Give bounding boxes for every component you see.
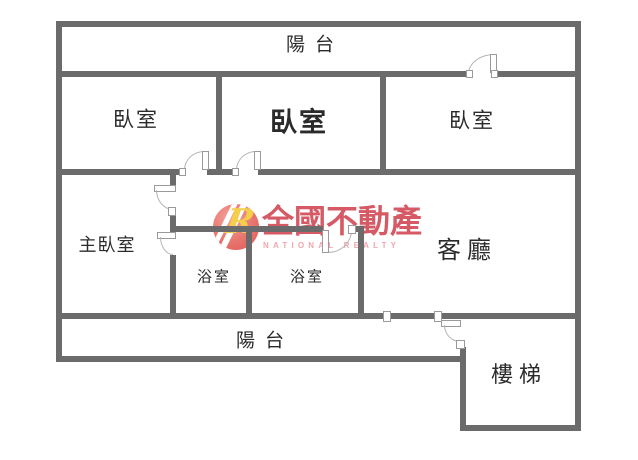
door-arc — [160, 237, 173, 255]
room-label-bedroom-middle: 臥室 — [270, 110, 328, 137]
wall-main-bottom — [56, 313, 383, 319]
wall-balcony-top — [56, 71, 469, 77]
room-label-master-bedroom: 主臥室 — [79, 236, 136, 254]
wall-balcony-top — [497, 71, 581, 77]
room-label-balcony-top: 陽台 — [286, 36, 344, 55]
door-jamb — [179, 168, 186, 176]
floor-plan: R 全國不動產 NATIONAL REALTY — [0, 0, 638, 460]
room-label-bedroom-right: 臥室 — [449, 111, 495, 132]
door-leaf — [202, 151, 209, 170]
room-label-stairs: 樓梯 — [491, 364, 547, 386]
wall-outer-right — [575, 21, 581, 431]
wall-main-bottom — [391, 313, 435, 319]
door-leaf — [254, 151, 261, 170]
door-jamb — [383, 311, 391, 322]
wall-balcony-bottom — [56, 356, 466, 362]
wall-master-right — [170, 255, 176, 313]
wall-outer-top — [56, 21, 581, 27]
door-jamb — [168, 207, 176, 216]
room-label-bedroom-left: 臥室 — [113, 110, 159, 131]
door-arc — [184, 151, 204, 170]
wall-stairs-left — [460, 347, 466, 431]
wall-bedroom-divider-right — [380, 77, 386, 169]
room-label-balcony-bottom: 陽台 — [236, 332, 294, 351]
door-leaf — [322, 230, 329, 253]
door-jamb — [348, 225, 356, 234]
wall-main-bottom — [442, 313, 581, 319]
wall-bedroom-divider-left — [216, 77, 222, 169]
plan-layer: 陽台 臥室 臥室 臥室 主臥室 浴室 浴室 客廳 陽台 樓梯 — [0, 0, 638, 460]
room-label-bathroom-1: 浴室 — [197, 270, 231, 285]
door-jamb — [456, 340, 465, 349]
door-jamb — [232, 168, 239, 176]
door-jamb — [491, 70, 498, 78]
room-label-living-room: 客廳 — [437, 239, 497, 263]
wall-bathroom-divider — [246, 232, 252, 313]
wall-bedrooms-bottom — [207, 169, 235, 175]
wall-bedrooms-bottom — [56, 169, 182, 175]
wall-bathroom-right — [358, 232, 364, 313]
door-arc — [236, 151, 256, 170]
wall-bedrooms-bottom — [258, 169, 581, 175]
room-label-bathroom-2: 浴室 — [290, 270, 324, 285]
door-jamb — [466, 70, 473, 78]
wall-stairs-bottom — [460, 425, 581, 431]
